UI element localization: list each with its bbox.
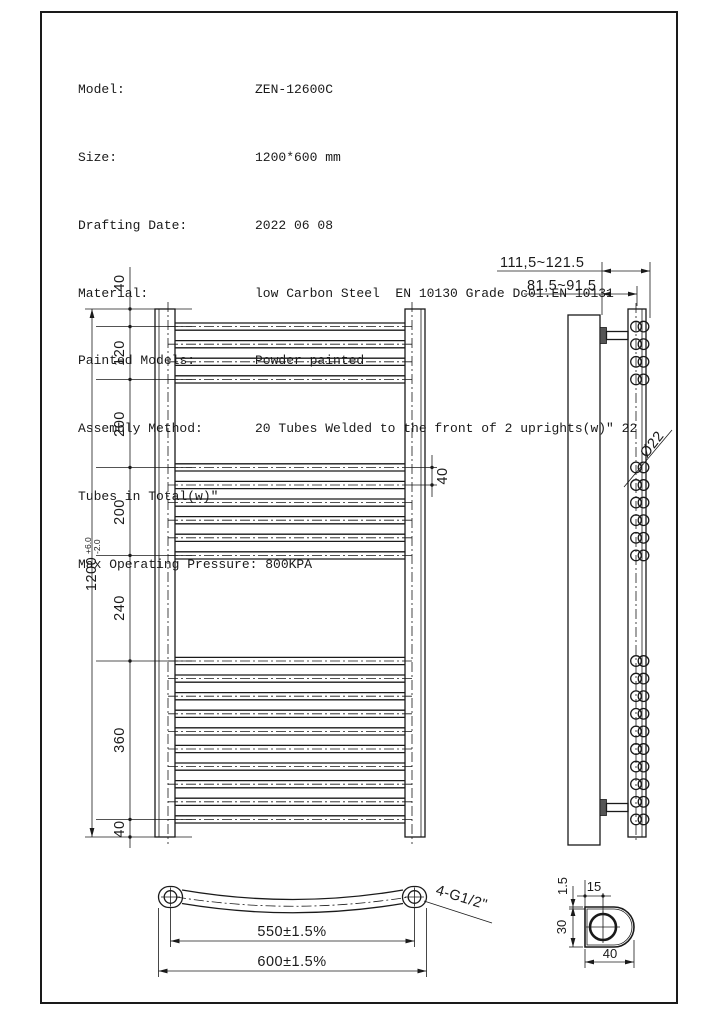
detail-dim-depth: 30 [554,907,583,947]
side-dim-inner-text: 81,5~91.5 [527,278,596,294]
side-tube-circle [638,673,649,684]
detail-view: 1.5 15 30 [554,877,634,968]
side-tube-circle [638,339,649,350]
side-tube-circle [638,761,649,772]
front-dim-chain: 40 120 200 200 240 360 40 [96,267,192,848]
chain-label-40-bottom: 40 [112,820,128,837]
side-tube-circle [638,374,649,385]
side-tube-circle [638,515,649,526]
side-dim-wall-to-upright: 81,5~91.5 [524,278,637,306]
side-tube-circle [638,814,649,825]
curved-tube-top-edge [182,890,403,900]
chain-label-40-top: 40 [112,274,128,291]
dim-40-text: 40 [603,946,617,961]
fitting-callout: 4-G1/2" [424,883,492,923]
wall-section [568,315,600,845]
front-overall-height-label: 1200 [84,557,100,591]
side-tube-circle [638,691,649,702]
chain-label-240: 240 [112,595,128,621]
chain-label-120: 120 [112,340,128,366]
side-view: 111,5~121.5 81,5~91.5 Ø22 [497,255,672,845]
curved-tube-bottom-edge [182,904,403,913]
side-tube-circle [638,321,649,332]
front-right-upright [405,309,425,837]
side-tube-circle [638,744,649,755]
dim-1-5-text: 1.5 [555,877,570,895]
bottom-view: 550±1.5% 600±1.5% 4-G1/2" [159,883,493,977]
side-tube-circle [638,726,649,737]
side-tube-circle [638,480,649,491]
front-tubes [168,323,412,823]
side-upright [628,309,646,837]
bottom-dim-centres: 550±1.5% [171,908,415,947]
front-left-upright [155,309,175,837]
side-tube-circle [638,497,649,508]
front-overall-tol-minus: -2.0 [92,539,102,554]
dim-550-text: 550±1.5% [257,924,326,940]
technical-drawing: 1200 +6.0 -2.0 40 120 200 200 240 360 40 [0,0,720,1018]
wall-bracket-bottom [600,800,628,816]
chain-dimension-mark [128,835,131,838]
chain-label-200a: 200 [112,411,128,437]
chain-dimension-mark [128,307,131,310]
pitch-label: 40 [435,467,451,484]
side-tube-circle [638,357,649,368]
dim-15-text: 15 [587,879,601,894]
chain-label-200b: 200 [112,499,128,525]
side-tube-circle [638,709,649,720]
curved-tube-centerline [176,897,409,906]
detail-dim-width: 40 [585,940,634,968]
side-tube-circle [638,550,649,561]
side-tube-circle [638,533,649,544]
front-view: 1200 +6.0 -2.0 40 120 200 200 240 360 40 [83,267,451,848]
drawing-sheet: Model:ZEN-12600C Size:1200*600 mm Drafti… [0,0,720,1018]
side-tube-circle [638,779,649,790]
front-dim-pitch: 40 [412,455,451,497]
fitting-text: 4-G1/2" [434,883,489,914]
dim-600-text: 600±1.5% [257,954,326,970]
wall-bracket-top [600,328,628,344]
tube-diameter-callout: Ø22 [624,428,672,487]
bottom-dim-overall: 600±1.5% [159,908,427,977]
side-tube-circle [638,797,649,808]
dim-30-text: 30 [554,920,569,934]
detail-dim-thickness: 1.5 [555,877,585,909]
chain-label-360: 360 [112,727,128,753]
side-dim-outer-text: 111,5~121.5 [500,255,584,271]
side-tube-circle [638,656,649,667]
